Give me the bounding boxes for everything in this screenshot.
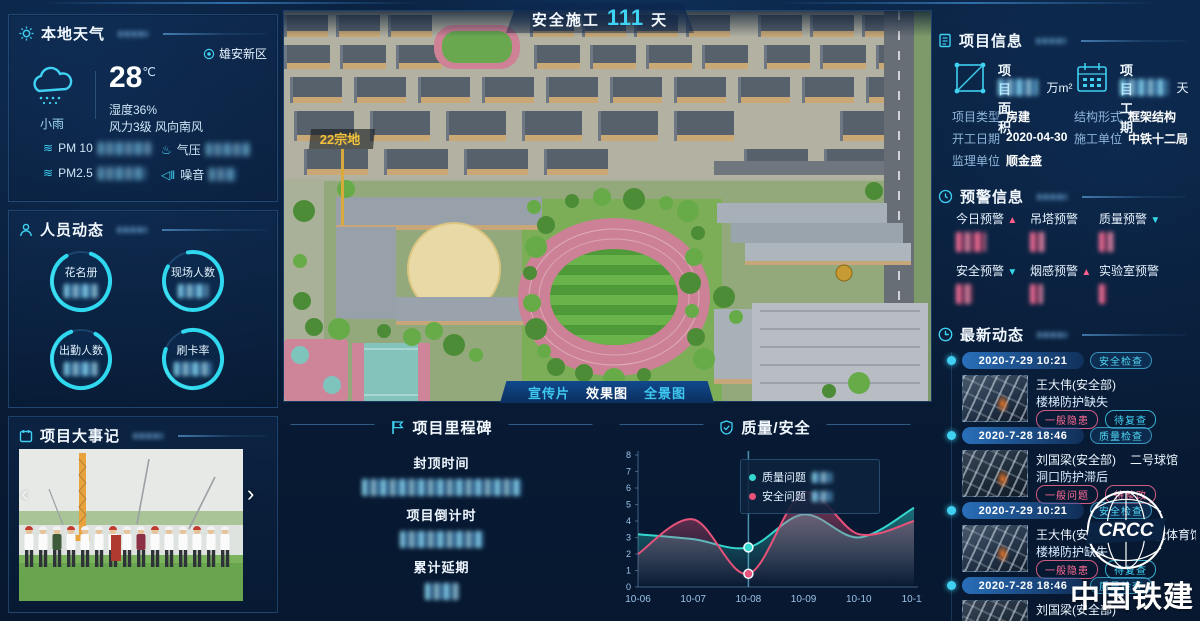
divider <box>95 71 96 119</box>
timeline-dot <box>947 506 956 515</box>
quality-safety-panel: 质量/安全 01234567810-0610-0710-0810-0910-10… <box>600 403 930 621</box>
milestone-countdown: 项目倒计时 <box>285 505 598 549</box>
humidity: 湿度36% <box>109 101 157 118</box>
trend-up-icon: ▲ <box>1007 215 1017 226</box>
inspector-name: 王大伟(安全部) <box>1036 378 1116 392</box>
alert-lab: 实验室预警 <box>1099 262 1159 304</box>
redacted-value <box>812 491 832 502</box>
shield-check-icon <box>719 420 734 435</box>
alerts-panel: 预警信息 今日预警 ▲ 吊塔预警 质量预警 ▼ 安全预警 ▼ 烟感预警 ▲ 实验… <box>938 178 1196 312</box>
calendar-icon <box>1074 60 1110 96</box>
redacted-value <box>174 362 212 376</box>
milestone-panel: 项目里程碑 封顶时间 项目倒计时 累计延期 <box>285 403 598 621</box>
alert-safety: 安全预警 ▼ <box>956 262 1017 304</box>
temp-unit: ℃ <box>142 65 155 79</box>
redacted-value <box>1030 232 1045 252</box>
svg-text:10-11: 10-11 <box>902 594 922 605</box>
redacted-value <box>64 362 98 376</box>
weather-current: 小雨 <box>25 65 79 132</box>
event-photo[interactable] <box>19 449 243 601</box>
entry-photo <box>962 525 1028 572</box>
site-render-view[interactable]: 22宗地 <box>283 10 932 402</box>
alert-smoke: 烟感预警 ▲ <box>1030 262 1091 304</box>
ring-onsite: 现场人数 <box>159 247 227 315</box>
aerial-render: 22宗地 <box>284 11 931 401</box>
redacted-value <box>362 479 522 496</box>
svg-text:10-08: 10-08 <box>736 594 762 605</box>
ring-attendance: 出勤人数 <box>47 325 115 393</box>
quality-series-dot <box>749 474 756 481</box>
redacted-value <box>1099 232 1114 252</box>
entry-photo <box>962 450 1028 497</box>
safe-days-value: 111 <box>607 5 644 31</box>
personnel-title: 人员动态 <box>40 219 104 240</box>
timeline-dot <box>947 356 956 365</box>
redacted-value <box>1030 284 1043 304</box>
temperature: 28℃ <box>109 61 156 95</box>
safety-series-label: 安全问题 <box>762 488 806 504</box>
carousel-prev-button[interactable]: ‹ <box>21 481 28 507</box>
calendar-note-icon <box>19 429 33 443</box>
alert-quality: 质量预警 ▼ <box>1099 210 1160 252</box>
crcc-abbr: CRCC <box>1099 520 1154 541</box>
project-type-row: 项目类型房建 <box>952 108 1030 125</box>
tab-panorama[interactable]: 全景图 <box>644 383 686 402</box>
svg-text:10-07: 10-07 <box>680 594 706 605</box>
trend-up-icon: ▲ <box>1081 267 1091 278</box>
issue-desc: 洞口防护滞后 <box>1036 468 1108 485</box>
svg-text:2: 2 <box>626 549 631 559</box>
pressure-icon: ♨ <box>161 143 172 157</box>
quality-series-label: 质量问题 <box>762 469 806 485</box>
trend-down-icon: ▼ <box>1007 267 1017 278</box>
builder-row: 施工单位中铁十二局 <box>1074 130 1188 147</box>
redacted-value <box>64 284 98 298</box>
entry-date: 2020-7-28 18:46 <box>962 577 1084 594</box>
dashboard-root: 安全施工 111 天 <box>0 0 1200 621</box>
area-unit: 万m² <box>1046 81 1072 95</box>
redacted-value <box>206 143 250 156</box>
entry-date: 2020-7-29 10:21 <box>962 352 1084 369</box>
start-date-row: 开工日期2020-04-30 <box>952 130 1067 147</box>
svg-text:8: 8 <box>626 450 631 460</box>
chart-tooltip: 质量问题 安全问题 <box>740 459 880 514</box>
svg-text:3: 3 <box>626 533 631 543</box>
location-pin-icon <box>203 48 215 60</box>
redacted-value <box>425 583 459 600</box>
redacted-value <box>98 167 146 180</box>
redacted-value <box>956 284 973 304</box>
document-icon <box>938 33 952 48</box>
svg-text:0: 0 <box>626 582 631 592</box>
location-name: 雄安新区 <box>219 45 267 62</box>
tab-promo-video[interactable]: 宣传片 <box>528 383 570 402</box>
weather-panel: 本地天气 雄安新区 小雨 28℃ 湿度36% 风力3级 风向南风 ≋ PM 10 <box>8 14 278 202</box>
svg-text:6: 6 <box>626 483 631 493</box>
alert-today: 今日预警 ▲ <box>956 210 1017 252</box>
person-icon <box>19 223 33 237</box>
pm25-metric: ≋ PM2.5 <box>43 166 146 180</box>
sports-courts <box>284 339 430 401</box>
crcc-globe-icon: CRCC <box>1082 488 1170 572</box>
safety-series-dot <box>749 493 756 500</box>
inspector-name: 刘国梁(安全部) <box>1036 453 1116 467</box>
ring-roster: 花名册 <box>47 247 115 315</box>
entry-location: 二号球馆 <box>1130 453 1178 467</box>
svg-text:10-06: 10-06 <box>625 594 651 605</box>
safe-days-label: 安全施工 <box>532 9 600 30</box>
quality-safety-title: 质量/安全 <box>741 417 810 438</box>
milestone-topping: 封顶时间 <box>285 453 598 497</box>
crcc-logo: CRCC 中国铁建 <box>1068 488 1200 621</box>
trend-down-icon: ▼ <box>1150 215 1160 226</box>
tab-render-image[interactable]: 效果图 <box>586 383 628 402</box>
pm-icon: ≋ <box>43 141 53 155</box>
entry-category: 安全检查 <box>1090 352 1152 369</box>
header-deco <box>117 227 147 233</box>
safe-days-unit: 天 <box>651 9 668 30</box>
pm10-metric: ≋ PM 10 <box>43 141 152 155</box>
entry-date: 2020-7-28 18:46 <box>962 427 1084 444</box>
events-panel: 项目大事记 ‹ › <box>8 416 278 613</box>
duration-unit: 天 <box>1176 81 1188 95</box>
header-deco <box>133 433 163 439</box>
ring-swipe-rate: 刷卡率 <box>159 325 227 393</box>
location-badge: 雄安新区 <box>203 45 267 62</box>
entry-date: 2020-7-29 10:21 <box>962 502 1084 519</box>
noise-metric: ◁‖ 噪音 <box>161 166 237 183</box>
redacted-value <box>400 531 484 548</box>
redacted-value <box>1120 79 1168 96</box>
project-info-panel: 项目信息 项目面积 万m² 项目工期 <box>938 22 1196 172</box>
redacted-value <box>209 168 237 181</box>
alarm-icon <box>938 189 953 204</box>
speaker-icon: ◁‖ <box>161 168 175 182</box>
personnel-panel: 人员动态 花名册 现场人数 出勤人数 刷卡率 <box>8 210 278 408</box>
svg-text:7: 7 <box>626 467 631 477</box>
redacted-value <box>98 142 152 155</box>
carousel-next-button[interactable]: › <box>247 481 254 507</box>
redacted-value <box>956 232 986 252</box>
area-icon <box>952 60 988 96</box>
timeline-dot <box>947 581 956 590</box>
structure-row: 结构形式框架结构 <box>1074 108 1176 125</box>
crcc-name: 中国铁建 <box>1070 572 1194 616</box>
header-deco <box>1037 332 1067 338</box>
redacted-value <box>1099 284 1107 304</box>
svg-text:10-10: 10-10 <box>846 594 872 605</box>
clock-icon <box>938 327 953 342</box>
supervisor-row: 监理单位顺金盛 <box>952 152 1042 169</box>
svg-text:5: 5 <box>626 500 631 510</box>
svg-text:1: 1 <box>626 566 631 576</box>
safe-days-header: 安全施工 111 天 <box>0 3 1200 33</box>
entry-category: 质量检查 <box>1090 427 1152 444</box>
redacted-value <box>812 472 832 483</box>
pm-icon: ≋ <box>43 166 53 180</box>
alerts-title: 预警信息 <box>960 186 1024 207</box>
project-info-title: 项目信息 <box>959 30 1023 51</box>
milestone-title: 项目里程碑 <box>412 417 492 438</box>
redacted-value <box>178 284 208 298</box>
milestone-delay: 累计延期 <box>285 557 598 601</box>
svg-text:22宗地: 22宗地 <box>320 132 360 147</box>
events-title: 项目大事记 <box>40 425 120 446</box>
entry-photo <box>962 600 1028 621</box>
header-deco <box>1036 38 1066 44</box>
view-tabs: 宣传片 效果图 全景图 <box>500 381 714 403</box>
timeline-dot <box>947 431 956 440</box>
pressure-metric: ♨ 气压 <box>161 141 250 158</box>
header-deco <box>1037 194 1067 200</box>
weather-condition: 小雨 <box>25 115 79 132</box>
feed-title: 最新动态 <box>960 324 1024 345</box>
flag-icon <box>390 420 405 435</box>
redacted-value <box>998 79 1038 96</box>
entry-photo <box>962 375 1028 422</box>
rain-cloud-icon <box>25 65 79 107</box>
issue-desc: 楼梯防护缺失 <box>1036 393 1108 410</box>
alert-crane: 吊塔预警 <box>1030 210 1078 252</box>
svg-text:10-09: 10-09 <box>791 594 817 605</box>
wind: 风力3级 风向南风 <box>109 118 203 135</box>
svg-text:4: 4 <box>626 516 631 526</box>
